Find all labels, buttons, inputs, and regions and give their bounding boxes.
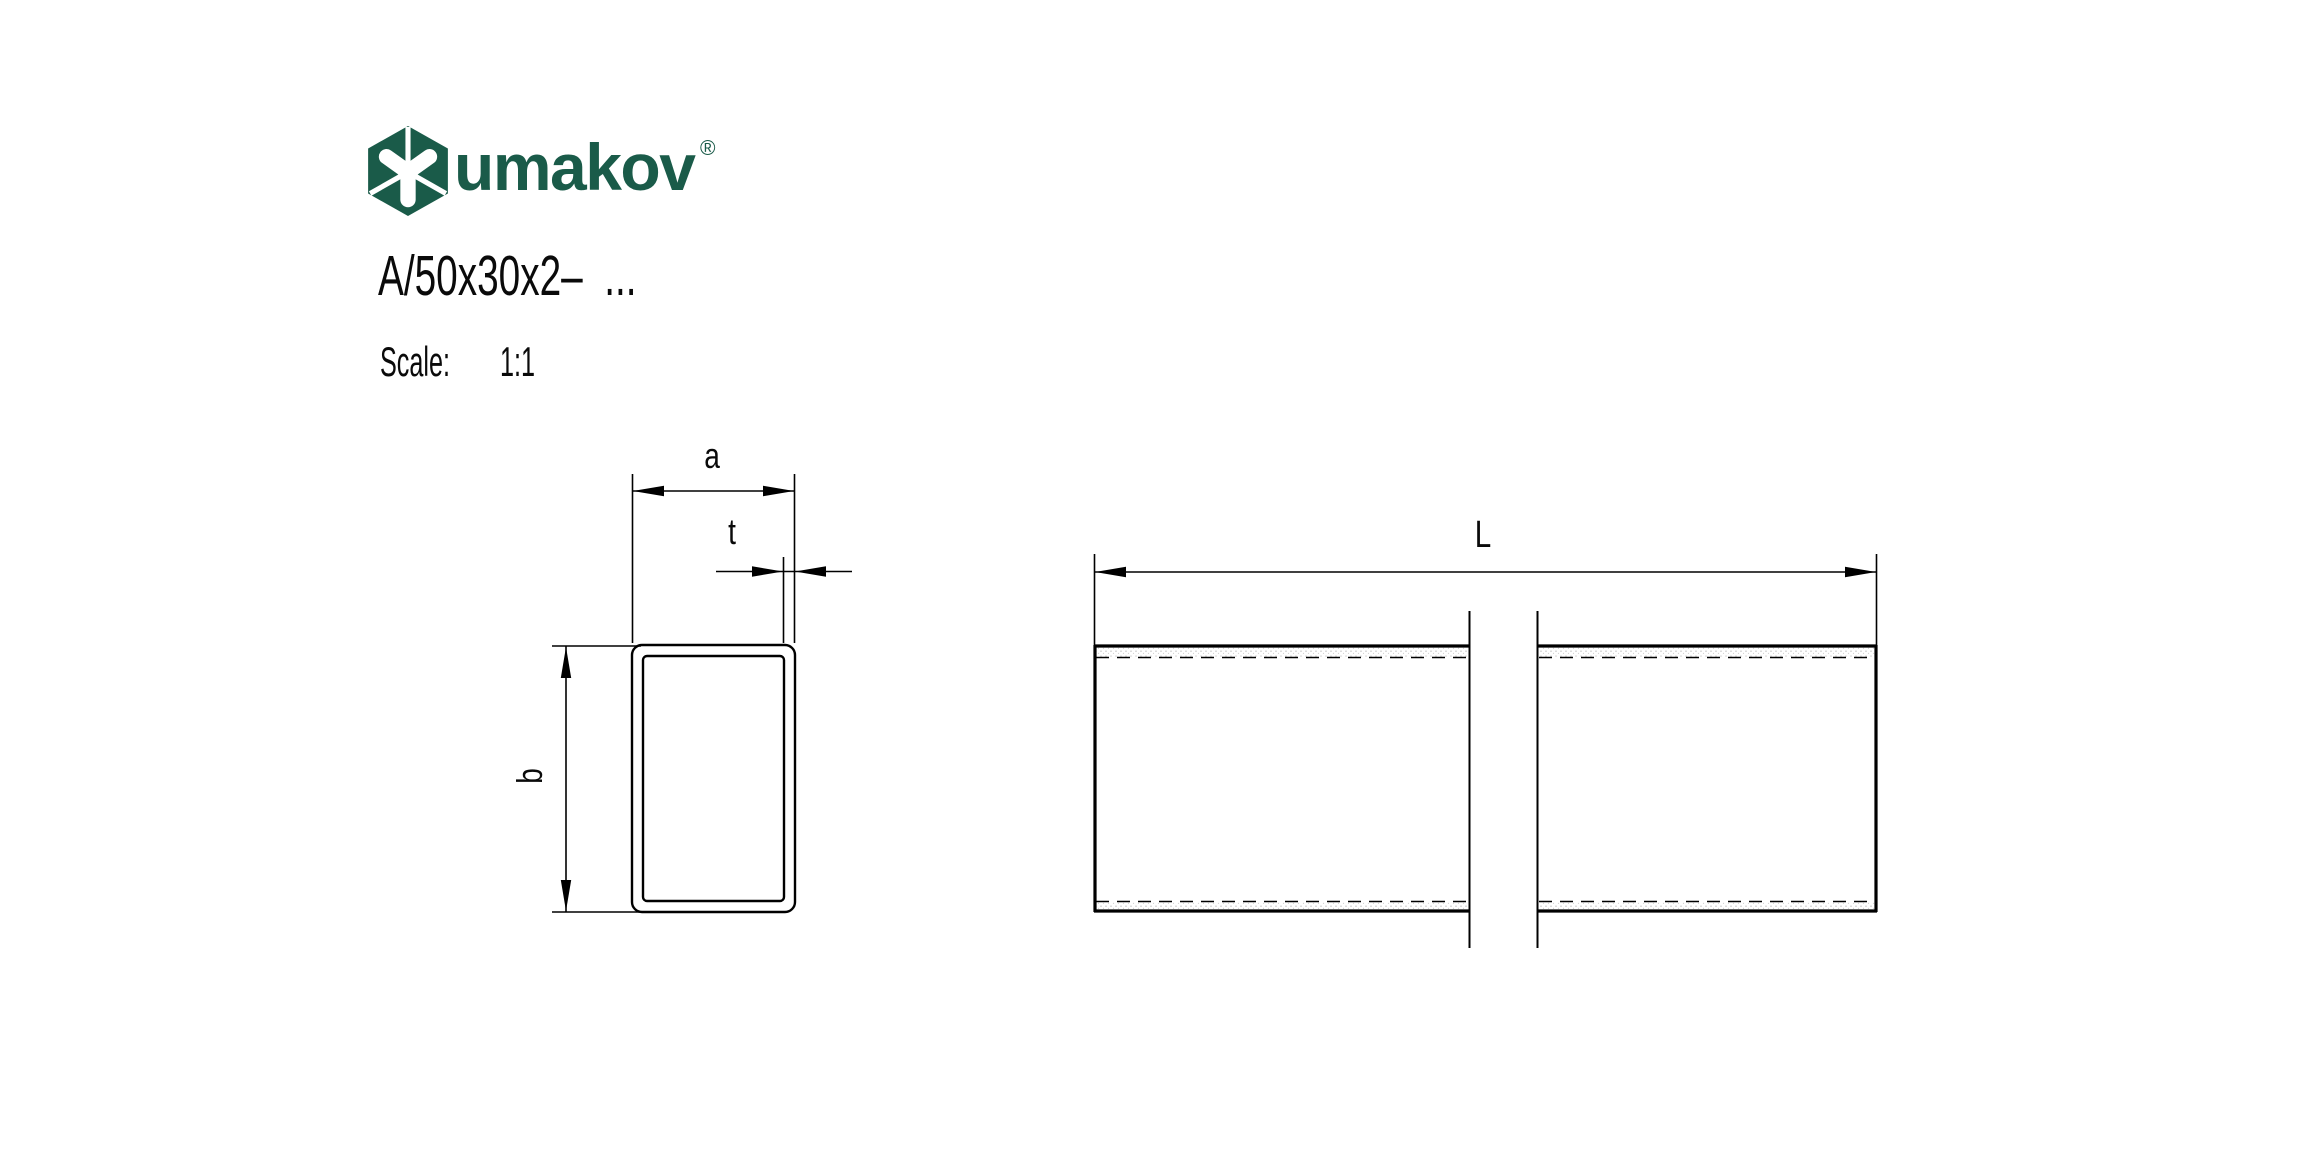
cross-section-view (552, 474, 852, 912)
arrowhead-left (1095, 567, 1126, 577)
dimension-L (1095, 554, 1877, 645)
dimension-label-b: b (512, 759, 548, 793)
dimension-label-t: t (715, 514, 749, 550)
wall-hatch (1096, 648, 1875, 911)
arrowhead-right (795, 566, 826, 576)
dimension-a (633, 474, 795, 643)
arrowhead-right (1845, 567, 1876, 577)
dimension-t (716, 557, 852, 643)
dimension-label-L: L (1466, 516, 1500, 554)
side-view (1094, 554, 1877, 948)
dimension-label-a: a (695, 438, 729, 474)
profile-inner-contour (643, 656, 784, 901)
technical-drawing (0, 0, 2302, 1174)
dimension-b (552, 646, 641, 912)
hidden-inner-wall-lines (1096, 658, 1875, 902)
profile-outer-contour (632, 645, 795, 912)
arrowhead-right (763, 486, 794, 496)
arrowhead-left (633, 486, 664, 496)
arrowhead-bottom (561, 880, 571, 911)
arrowhead-top (561, 647, 571, 678)
break-lines (1470, 611, 1538, 948)
tube-outline (1094, 645, 1877, 912)
arrowhead-left (752, 566, 783, 576)
drawing-sheet: umakov ® A/50x30x2– ... Scale: 1:1 (0, 0, 2302, 1174)
